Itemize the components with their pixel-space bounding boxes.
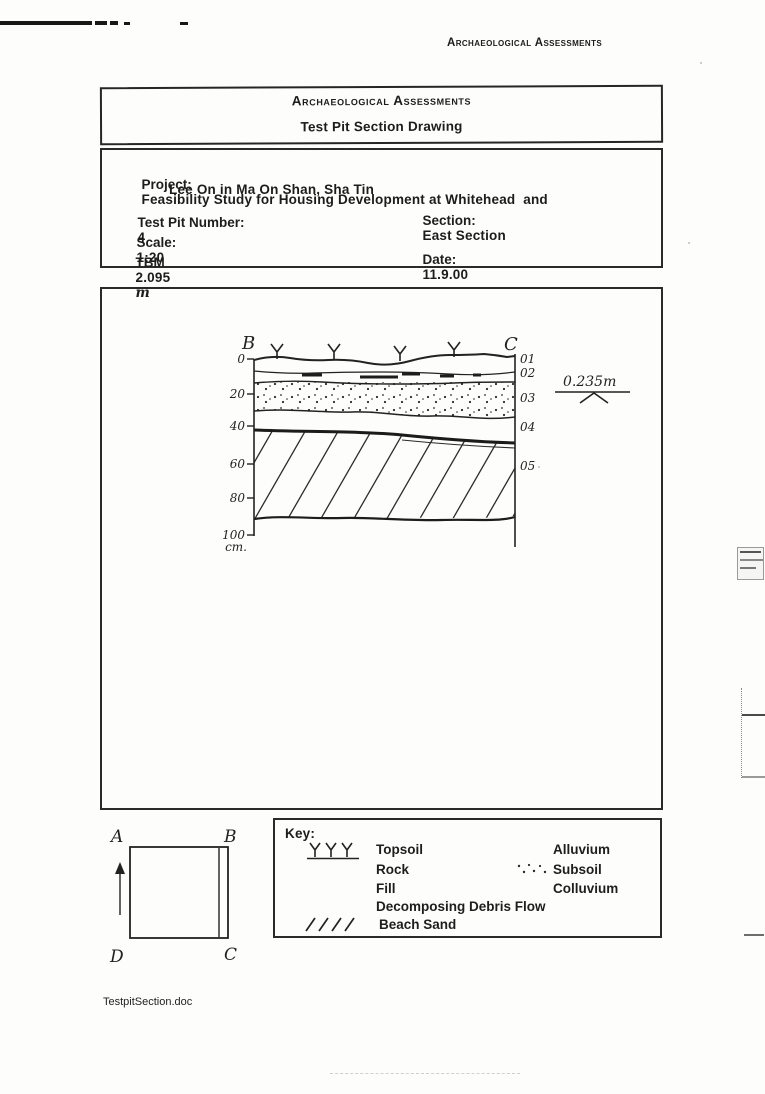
depth-tick-80: 80 [230, 491, 246, 505]
scan-artifact-punch-box [737, 547, 764, 580]
section-bottom-line [254, 517, 515, 520]
key-item-fill: Fill [376, 881, 396, 896]
test-pit-section-svg: B C [102, 289, 661, 808]
depth-tick-60: 60 [230, 457, 246, 471]
scan-artifact-speck [688, 242, 690, 244]
document-subtitle: Test Pit Section Drawing [102, 118, 661, 135]
level-benchmark-icon [580, 393, 608, 403]
ground-surface-line [254, 354, 515, 365]
depth-tick-20: 20 [229, 387, 246, 401]
page-header-text: Archaeological Assessments [447, 37, 602, 49]
topsoil-symbol [328, 344, 340, 359]
key-item-beach-sand: Beach Sand [379, 917, 456, 932]
scan-artifact-speck [700, 62, 702, 64]
key-item-topsoil: Topsoil [376, 842, 423, 857]
topsoil-key-symbol [307, 841, 359, 860]
section-label: Section: [423, 213, 476, 228]
scan-artifact-dash [180, 22, 188, 25]
section-end-b-label: B [241, 333, 255, 354]
key-box: Key: Topsoil Rock Fill Decomposing Debri… [273, 818, 662, 938]
location-plan: A B C D [105, 822, 255, 967]
level-annotation-text: 0.235m [563, 374, 616, 390]
topsoil-symbol [394, 346, 406, 361]
depth-tick-0: 0 [237, 352, 245, 366]
plan-corner-b: B [223, 827, 237, 847]
scan-artifact-speck [538, 466, 540, 468]
scan-artifact-dotted-line [741, 688, 742, 778]
project-value-line2: Lee On in Ma On Shan, Sha Tin [169, 182, 374, 197]
scan-artifact-dashes [330, 1073, 520, 1074]
document-title: Archaeological Assessments [102, 92, 661, 109]
scan-artifact-dash [110, 21, 118, 25]
section-drawing-box: B C [100, 287, 663, 810]
location-plan-svg: A B C D [105, 822, 255, 967]
scanned-document-page: Archaeological Assessments Archaeologica… [0, 0, 765, 1094]
section-end-c-label: C [504, 334, 518, 355]
plan-corner-d: D [109, 947, 124, 967]
north-arrow-icon [115, 862, 125, 915]
key-item-rock: Rock [376, 862, 409, 877]
key-item-subsoil: Subsoil [553, 862, 602, 877]
title-box: Archaeological Assessments Test Pit Sect… [100, 85, 663, 145]
date-label: Date: [423, 252, 457, 267]
project-info-box: Project: Feasibility Study for Housing D… [100, 148, 663, 268]
depth-unit-label: cm. [225, 540, 247, 554]
depth-axis-ticks [247, 359, 254, 535]
scan-artifact-line [744, 934, 764, 936]
beach-sand-key-symbol [302, 916, 356, 933]
plan-square [130, 847, 228, 938]
key-title: Key: [285, 826, 315, 841]
footer-filename: TestpitSection.doc [103, 996, 192, 1008]
layer-label-05: 05 [520, 459, 535, 473]
layer-label-04: 04 [520, 420, 535, 434]
depth-tick-40: 40 [229, 419, 246, 433]
subsoil-key-symbol [515, 860, 549, 878]
layer-label-03: 03 [520, 391, 536, 405]
scan-artifact-dash [95, 21, 107, 25]
key-item-decomposing-debris-flow: Decomposing Debris Flow [376, 899, 546, 914]
layer-label-01: 01 [520, 352, 535, 366]
scan-artifact-bar [0, 21, 92, 25]
tbm-label: TBM [136, 255, 165, 270]
tbm-value: 2.095 [136, 270, 171, 285]
key-item-colluvium: Colluvium [553, 881, 618, 896]
layer-label-02: 02 [520, 366, 535, 380]
scan-artifact-line [742, 714, 765, 716]
plan-corner-a: A [109, 827, 123, 847]
scan-artifact-line [742, 776, 765, 778]
plan-corner-c: C [224, 945, 237, 965]
scan-artifact-dash [124, 22, 130, 25]
key-item-alluvium: Alluvium [553, 842, 610, 857]
layer-04-heavy-line [254, 430, 515, 443]
level-annotation: 0.235m [555, 374, 630, 403]
date-value: 11.9.00 [423, 267, 469, 282]
